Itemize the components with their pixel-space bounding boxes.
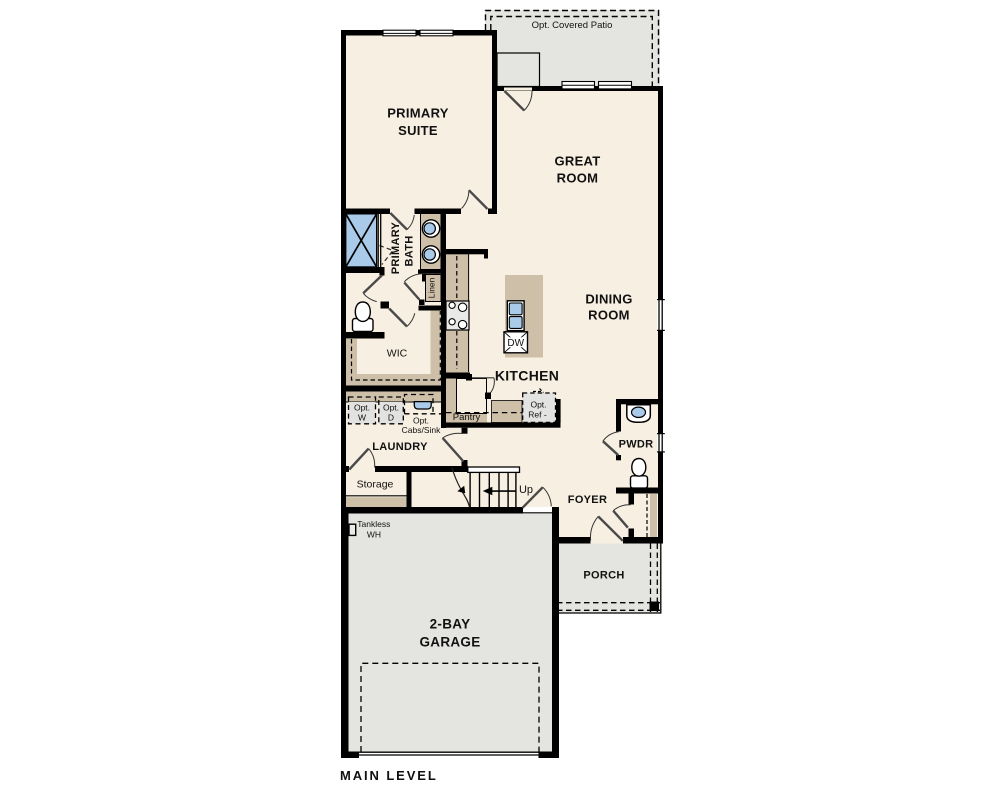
svg-text:GREAT: GREAT [554,154,600,169]
svg-text:Storage: Storage [357,479,394,491]
svg-text:DINING: DINING [585,292,632,307]
svg-text:FOYER: FOYER [568,494,607,506]
svg-text:Cabs/Sink: Cabs/Sink [402,425,441,435]
svg-text:Up: Up [519,484,533,496]
svg-text:PWDR: PWDR [619,439,654,451]
svg-text:D: D [388,413,394,423]
svg-text:LAUNDRY: LAUNDRY [372,441,428,453]
svg-text:SUITE: SUITE [398,123,438,138]
svg-text:WH: WH [367,530,381,540]
svg-text:Opt. Covered Patio: Opt. Covered Patio [532,20,613,31]
svg-text:Tankless: Tankless [357,519,390,529]
svg-text:Opt.: Opt. [530,400,546,410]
svg-text:PRIMARY: PRIMARY [390,221,402,274]
svg-text:KITCHEN: KITCHEN [495,368,559,384]
svg-text:Opt.: Opt. [413,416,429,426]
svg-text:2-BAY: 2-BAY [430,617,471,632]
svg-text:Linen: Linen [427,277,437,298]
svg-text:MAIN LEVEL: MAIN LEVEL [340,768,438,783]
svg-text:ROOM: ROOM [588,308,630,323]
svg-text:ROOM: ROOM [557,171,599,186]
svg-text:PORCH: PORCH [583,570,624,582]
svg-text:Opt.: Opt. [354,403,370,413]
svg-text:DW: DW [507,338,524,349]
svg-text:Ref -: Ref - [528,410,547,420]
svg-text:BATH: BATH [404,236,416,267]
svg-text:PRIMARY: PRIMARY [387,106,449,121]
svg-text:Pantry: Pantry [453,412,481,423]
svg-text:Opt.: Opt. [383,403,399,413]
svg-text:W: W [358,413,366,423]
svg-text:WIC: WIC [387,348,408,360]
svg-text:GARAGE: GARAGE [419,635,480,650]
